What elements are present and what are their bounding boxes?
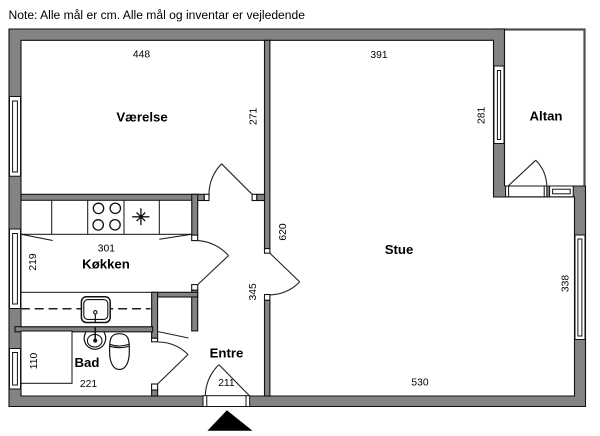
svg-text:345: 345 (248, 283, 259, 300)
svg-text:271: 271 (249, 108, 260, 125)
svg-text:338: 338 (561, 275, 572, 292)
svg-text:Note: Alle mål er cm. Alle mål: Note: Alle mål er cm. Alle mål og invent… (9, 8, 306, 22)
svg-text:301: 301 (98, 244, 115, 255)
svg-text:110: 110 (29, 353, 40, 370)
svg-text:Stue: Stue (385, 242, 414, 257)
svg-text:219: 219 (28, 253, 39, 270)
svg-text:211: 211 (218, 378, 235, 389)
svg-text:Entre: Entre (210, 346, 244, 361)
svg-text:448: 448 (133, 50, 150, 61)
svg-text:221: 221 (80, 379, 97, 390)
svg-text:620: 620 (278, 223, 289, 240)
svg-text:Bad: Bad (75, 355, 100, 370)
svg-text:281: 281 (477, 107, 488, 124)
svg-text:Køkken: Køkken (82, 257, 130, 272)
svg-text:530: 530 (411, 378, 428, 389)
svg-text:Værelse: Værelse (116, 110, 167, 125)
svg-text:Altan: Altan (530, 109, 563, 124)
svg-text:391: 391 (370, 50, 387, 61)
